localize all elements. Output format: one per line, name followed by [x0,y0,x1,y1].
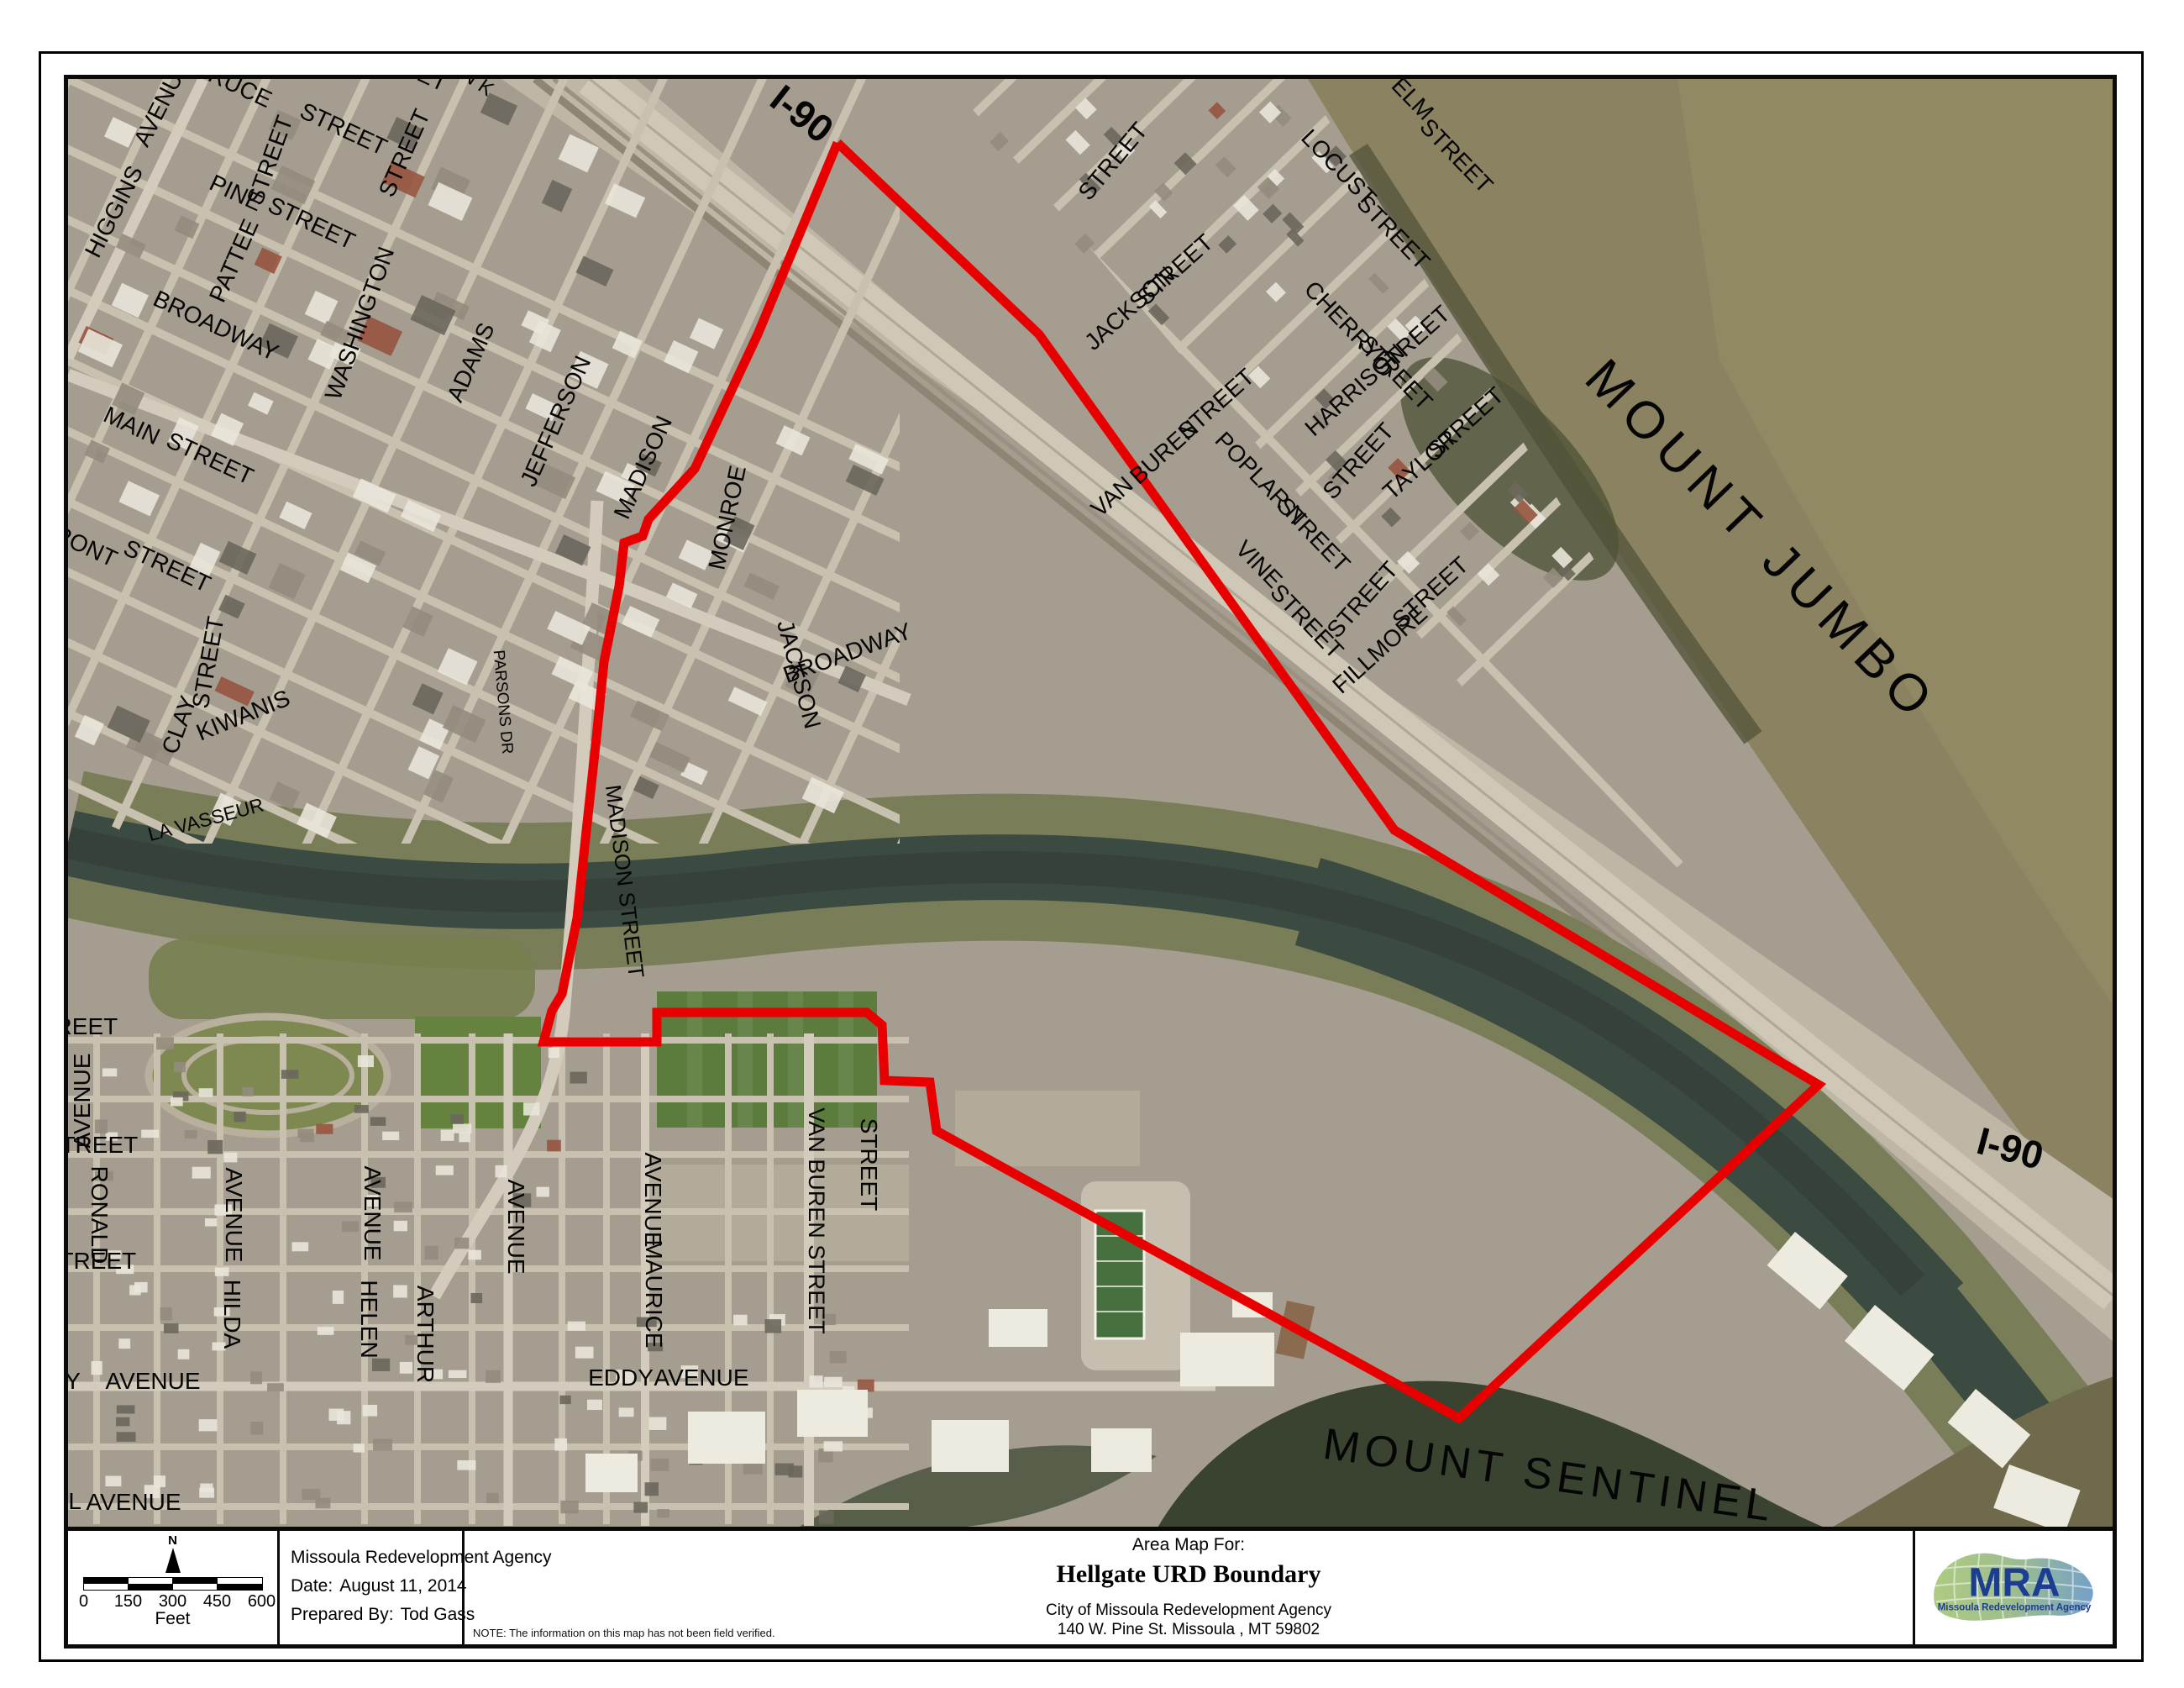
building [536,1187,549,1197]
building [92,1361,102,1375]
building [733,1315,748,1326]
building [486,1493,499,1503]
street-label: AVENUE [654,1365,748,1391]
building [470,1293,482,1303]
building [333,1291,344,1304]
building [449,1370,467,1378]
page-title: Hellgate URD Boundary [465,1560,1913,1589]
building [819,1511,834,1524]
scale-tick: 300 [159,1592,186,1612]
building [337,1411,350,1424]
building [560,1501,578,1513]
building [156,1037,174,1049]
north-arrow-icon [165,1548,181,1573]
street-label: ELL [68,1488,81,1514]
building [657,1509,669,1517]
building [192,1167,211,1179]
title-box: Area Map For: Hellgate URD Boundary City… [465,1531,1915,1644]
area-map-for-label: Area Map For: [465,1535,1913,1555]
building [199,1088,213,1096]
building [141,1130,159,1138]
street-label: AVENUE [360,1165,386,1260]
building [207,1140,223,1154]
building [457,1460,475,1470]
prepared-line: Prepared By:Tod Gass [291,1605,462,1625]
map-frame: SPRUCESTREETSTREETLINKI-90AVENUESTREETHI… [64,75,2117,1531]
building [459,1133,470,1142]
building [178,1349,190,1359]
date-value: August 11, 2014 [339,1576,466,1596]
building [568,1322,585,1331]
building [363,1405,377,1417]
logo-box: MRA Missoula Redevelopment Agency [1915,1531,2113,1644]
building [486,1370,501,1383]
building [830,1351,847,1363]
building [358,1055,374,1067]
building [354,1443,365,1452]
building [441,1130,454,1141]
building [370,1117,386,1125]
track-oval [149,1017,387,1134]
street-label: STREET [856,1118,882,1211]
building [160,1307,172,1320]
building [372,1359,390,1371]
building [619,1407,634,1417]
street-label: EDDY [588,1365,654,1391]
building [764,1319,781,1333]
scale-ticks: 0 150 300 450 600 [84,1592,262,1611]
building [645,1482,659,1496]
stadium [1081,1181,1190,1370]
building [575,1347,594,1359]
building [116,1417,129,1427]
building [118,1338,130,1349]
building [523,1102,539,1115]
building [129,1285,140,1295]
building [267,1383,284,1391]
building [425,1246,438,1259]
building [205,1218,217,1226]
building [105,1475,121,1486]
building [316,1124,333,1134]
street-label: EDDY [68,1368,81,1394]
street-label: AVENUE [503,1179,529,1274]
building [824,1441,843,1451]
building [824,1377,843,1387]
building [281,1070,299,1078]
agency-line-1: City of Missoula Redevelopment Agency [465,1601,1913,1620]
scale-bar [83,1577,263,1591]
building [185,1130,197,1138]
prepared-label: Prepared By: [291,1605,394,1624]
building [242,1087,254,1096]
building [223,1153,237,1163]
building [559,1396,570,1404]
building [496,1165,507,1177]
prepared-value: Tod Gass [401,1605,475,1624]
date-label: Date: [291,1576,333,1596]
street-label: AVENUE [105,1368,200,1394]
building [102,1068,117,1076]
building [300,1133,314,1143]
building [373,1439,392,1451]
building [302,1489,320,1500]
building [199,1419,218,1431]
street-label: STREET [68,1132,138,1158]
building [450,1114,463,1124]
logo-acronym: MRA [1968,1560,2060,1605]
building [354,1105,369,1113]
scale-box: N 0 150 300 450 600 Feet [68,1531,280,1644]
street-label: MAURICE [641,1239,667,1348]
building [554,1438,567,1451]
map-canvas: SPRUCESTREETSTREETLINKI-90AVENUESTREETHI… [68,79,2113,1527]
building [164,1323,178,1333]
building [454,1238,469,1249]
date-line: Date:August 11, 2014 [291,1576,462,1596]
street-label: STREET [68,1248,136,1274]
building [587,1400,602,1410]
building [291,1242,308,1251]
building [549,1048,559,1058]
building [215,1267,229,1275]
north-indicator: N [68,1534,277,1573]
building [200,1484,213,1492]
street-label: STREET [68,1013,118,1039]
street-label: AVENUE [640,1152,666,1247]
scale-tick: 0 [79,1592,88,1612]
building [570,1072,587,1084]
street-label: AVENUE [221,1167,247,1262]
map-sheet: SPRUCESTREETSTREETLINKI-90AVENUESTREETHI… [0,0,2184,1688]
building [436,1165,454,1175]
practice-field-west [415,1017,541,1128]
street-label: AVENUE [86,1489,181,1515]
info-box: Missoula Redevelopment Agency Date:Augus… [280,1531,465,1644]
building [810,1375,823,1387]
scale-tick: 450 [203,1592,231,1612]
building [468,1250,480,1260]
street-label: HELEN [356,1280,382,1358]
building [743,1463,763,1475]
building [318,1327,334,1335]
building [250,1371,262,1384]
building [171,1097,183,1106]
building [117,1432,136,1442]
building [400,1362,412,1374]
building [394,1221,407,1231]
building [174,1062,186,1072]
agency-name: Missoula Redevelopment Agency [291,1548,462,1568]
building [117,1405,135,1413]
mra-logo: MRA Missoula Redevelopment Agency [1925,1543,2103,1633]
disclaimer-note: NOTE: The information on this map has no… [473,1627,775,1639]
building [382,1132,399,1140]
building [453,1123,471,1133]
building [649,1417,667,1430]
north-label: N [68,1534,277,1547]
street-label: ARTHUR [412,1286,438,1383]
riverfront-park [149,939,535,1019]
logo-name: Missoula Redevelopment Agency [1937,1602,2091,1612]
building [393,1285,407,1297]
building [250,1422,263,1435]
scale-tick: 600 [248,1592,276,1612]
building [394,1202,412,1212]
street-label: HILDA [219,1280,245,1349]
building [789,1465,803,1477]
building [547,1140,561,1152]
map-collar: N 0 150 300 450 600 Feet Missoula Redeve… [64,1531,2117,1649]
building [342,1221,359,1232]
building [234,1112,245,1122]
building [633,1502,648,1513]
street-label: VAN BUREN STREET [804,1107,829,1334]
scale-unit: Feet [68,1609,277,1629]
scale-tick: 150 [114,1592,142,1612]
building [651,1459,669,1471]
